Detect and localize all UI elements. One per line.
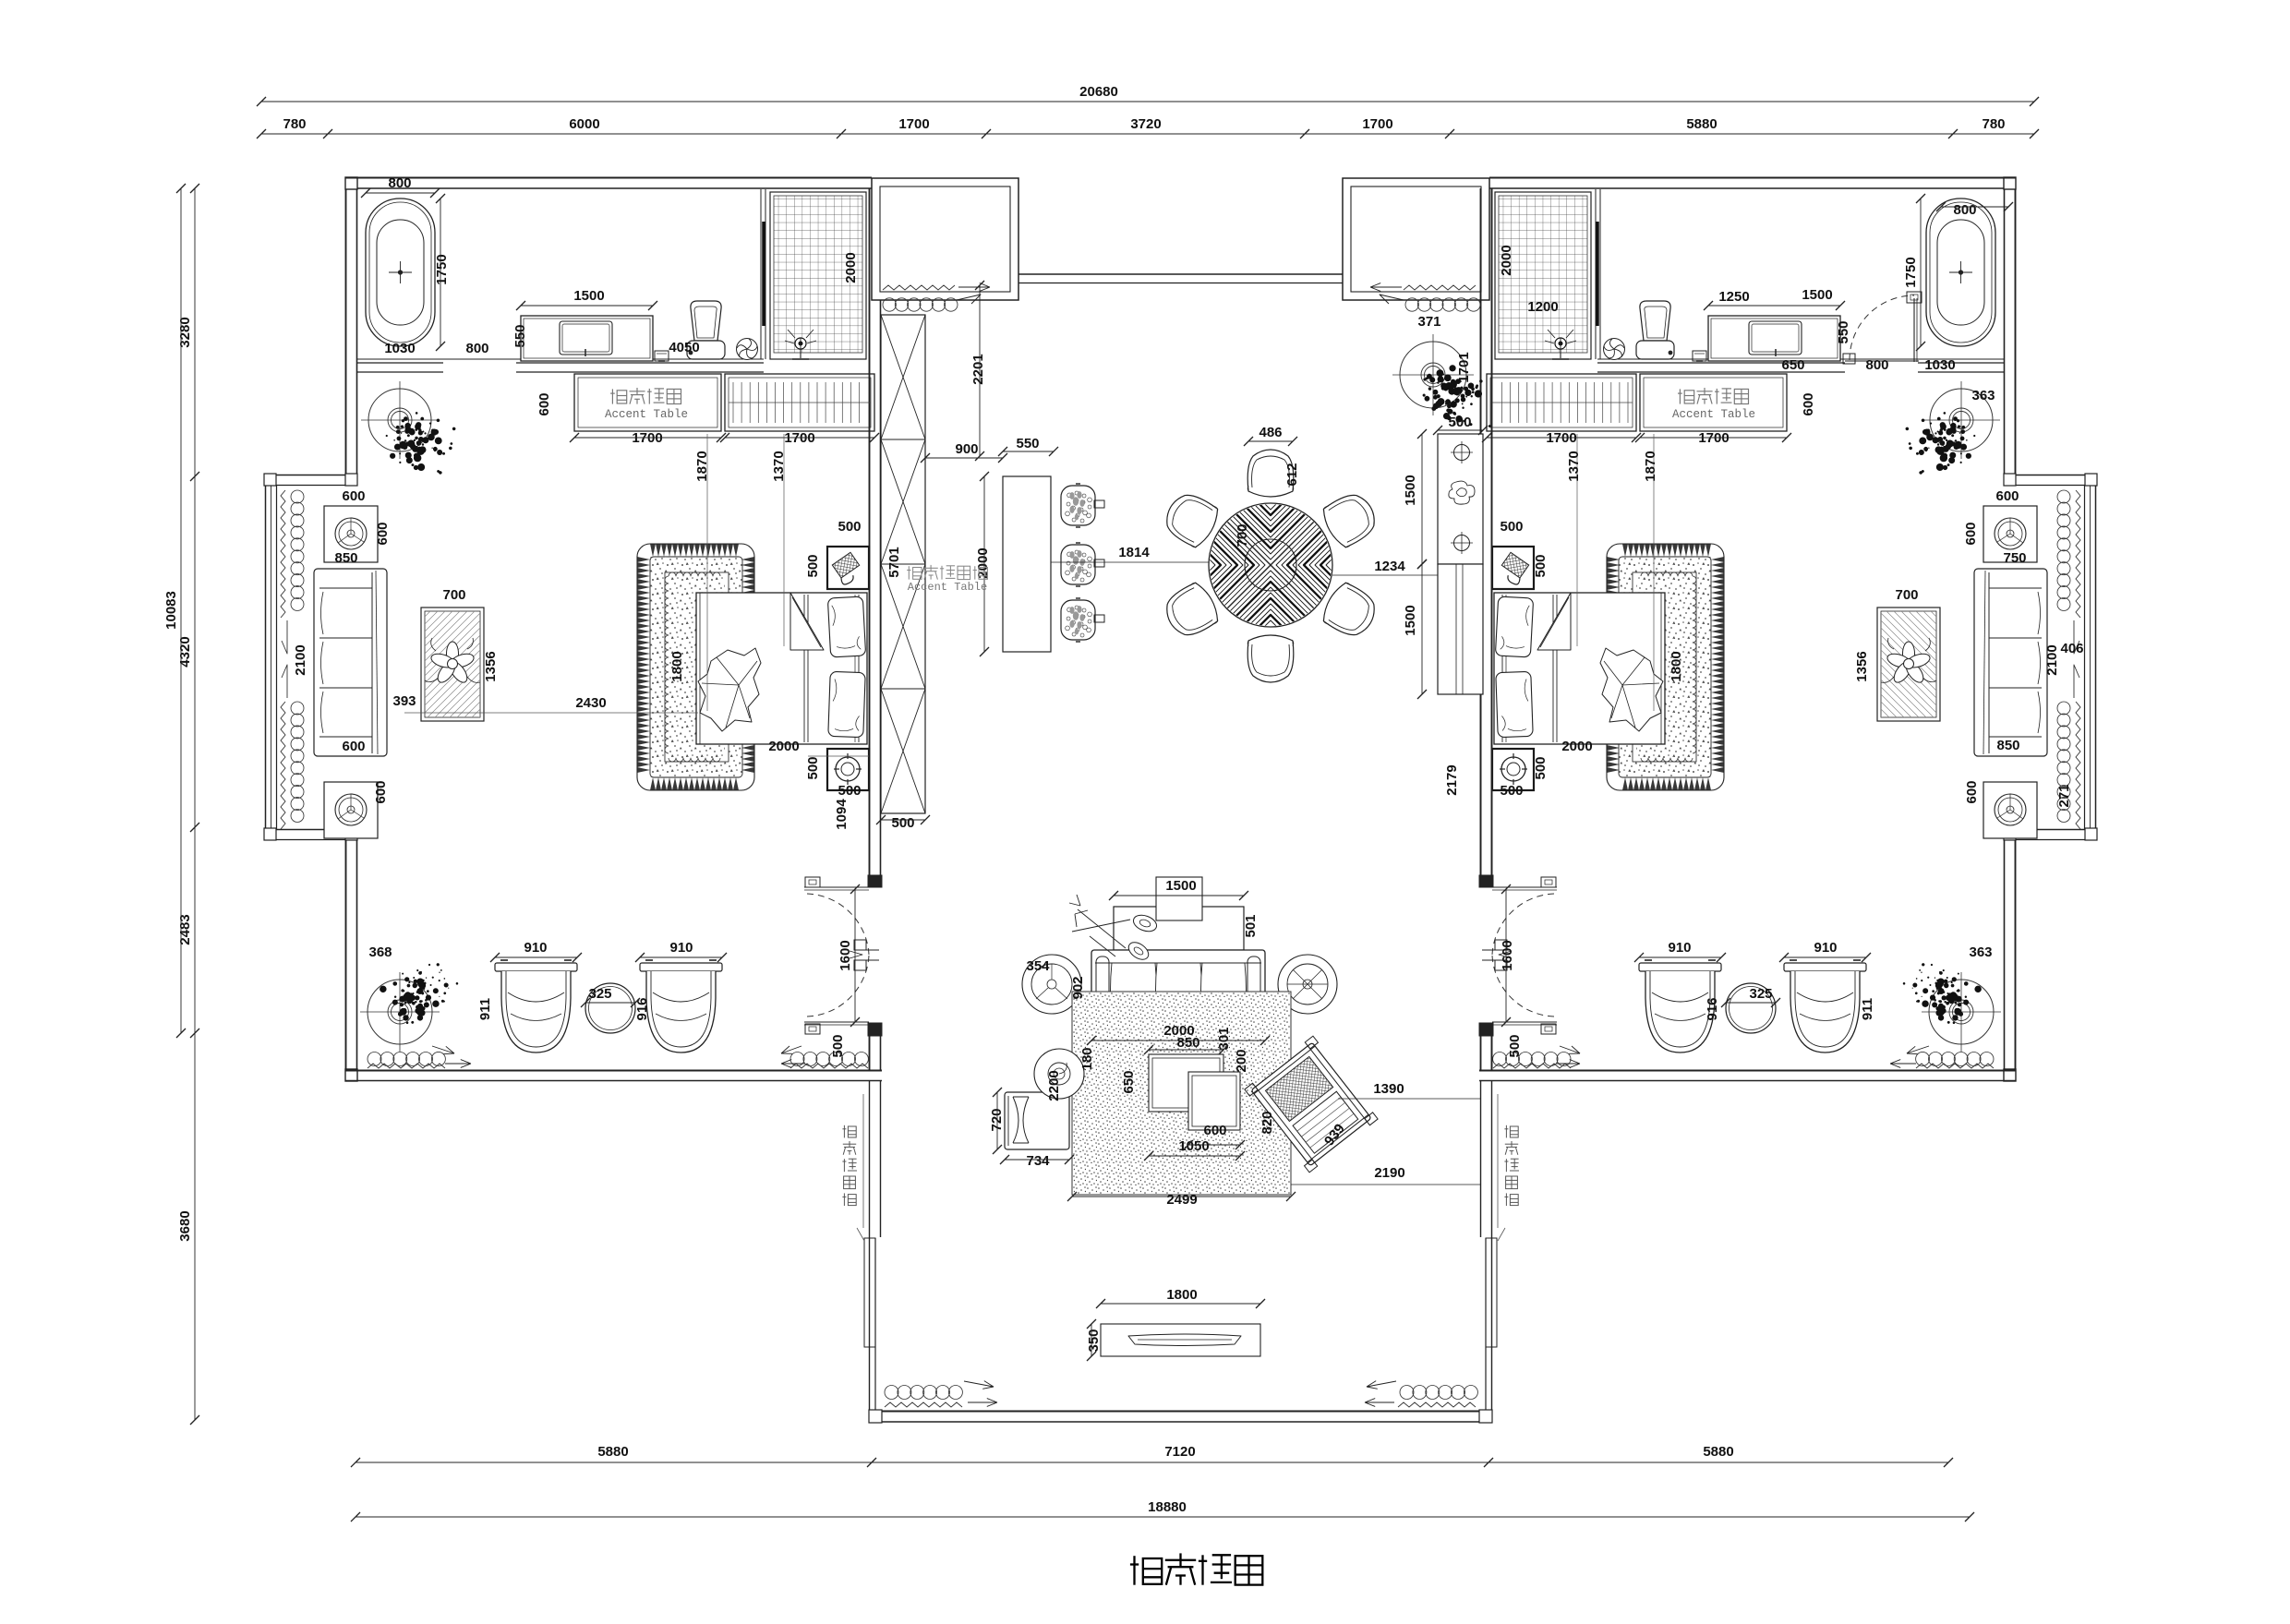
svg-text:1700: 1700 [784, 430, 814, 446]
svg-text:600: 600 [1964, 780, 1980, 803]
svg-text:1200: 1200 [1527, 299, 1558, 315]
svg-text:486: 486 [1259, 425, 1282, 440]
svg-text:900: 900 [955, 441, 978, 457]
svg-text:1750: 1750 [1903, 257, 1919, 287]
svg-text:1050: 1050 [1178, 1138, 1209, 1154]
svg-text:1500: 1500 [1403, 475, 1418, 505]
svg-text:20680: 20680 [1079, 84, 1118, 100]
svg-text:500: 500 [838, 519, 861, 535]
svg-text:600: 600 [1801, 392, 1816, 415]
svg-text:850: 850 [1996, 738, 2019, 753]
svg-text:910: 910 [1668, 940, 1691, 956]
svg-text:600: 600 [1963, 522, 1979, 545]
svg-text:6000: 6000 [569, 116, 599, 132]
svg-text:180: 180 [1079, 1047, 1095, 1070]
svg-text:600: 600 [342, 739, 365, 754]
svg-text:550: 550 [512, 324, 528, 347]
svg-text:3720: 3720 [1130, 116, 1161, 132]
svg-text:1356: 1356 [1854, 651, 1870, 681]
svg-text:500: 500 [1533, 554, 1549, 577]
svg-text:1700: 1700 [898, 116, 929, 132]
svg-text:750: 750 [2003, 550, 2026, 566]
svg-text:1870: 1870 [694, 451, 710, 481]
svg-text:18880: 18880 [1148, 1499, 1187, 1515]
svg-text:600: 600 [373, 780, 389, 803]
svg-text:600: 600 [342, 488, 365, 504]
svg-text:363: 363 [1969, 944, 1992, 960]
svg-text:1370: 1370 [771, 451, 787, 481]
svg-text:371: 371 [1417, 314, 1440, 330]
svg-text:1500: 1500 [573, 288, 604, 304]
svg-text:600: 600 [1995, 488, 2019, 504]
svg-text:2000: 2000 [768, 739, 799, 754]
svg-text:4050: 4050 [669, 340, 699, 355]
svg-text:1701: 1701 [1456, 352, 1472, 382]
svg-text:1800: 1800 [1166, 1287, 1197, 1303]
svg-text:406: 406 [2060, 641, 2083, 656]
svg-text:5880: 5880 [1703, 1444, 1733, 1460]
svg-text:500: 500 [838, 783, 861, 799]
svg-text:1700: 1700 [1362, 116, 1392, 132]
svg-text:301: 301 [1216, 1027, 1232, 1050]
svg-text:612: 612 [1284, 463, 1300, 486]
svg-text:1030: 1030 [1924, 357, 1955, 373]
svg-text:600: 600 [1203, 1123, 1226, 1138]
svg-text:5880: 5880 [597, 1444, 628, 1460]
svg-text:500: 500 [805, 756, 821, 779]
svg-text:650: 650 [1121, 1070, 1137, 1093]
svg-text:2200: 2200 [1046, 1070, 1062, 1101]
svg-text:500: 500 [891, 815, 914, 831]
svg-text:1234: 1234 [1374, 559, 1405, 574]
svg-text:1356: 1356 [483, 651, 499, 681]
svg-text:902: 902 [1070, 976, 1086, 999]
svg-text:500: 500 [1448, 415, 1471, 430]
svg-text:550: 550 [1016, 436, 1039, 451]
svg-text:1750: 1750 [434, 254, 450, 284]
svg-text:2483: 2483 [177, 914, 193, 944]
svg-text:911: 911 [1860, 998, 1875, 1020]
svg-text:800: 800 [465, 341, 488, 356]
svg-text:2179: 2179 [1444, 764, 1460, 795]
svg-text:7120: 7120 [1164, 1444, 1195, 1460]
svg-text:3680: 3680 [177, 1210, 193, 1241]
svg-text:800: 800 [1953, 202, 1976, 218]
svg-text:2190: 2190 [1374, 1165, 1404, 1181]
svg-text:Accent Table: Accent Table [605, 408, 688, 421]
svg-text:1030: 1030 [384, 341, 415, 356]
svg-text:800: 800 [388, 175, 411, 191]
svg-text:1700: 1700 [1698, 430, 1729, 446]
svg-text:1800: 1800 [669, 651, 685, 681]
svg-text:2430: 2430 [575, 695, 606, 711]
svg-text:5701: 5701 [886, 547, 902, 577]
svg-text:800: 800 [1865, 357, 1888, 373]
svg-text:500: 500 [1507, 1034, 1523, 1057]
svg-text:2201: 2201 [970, 354, 986, 384]
svg-text:501: 501 [1243, 914, 1259, 937]
svg-text:363: 363 [1971, 388, 1995, 403]
svg-text:1390: 1390 [1373, 1081, 1404, 1097]
svg-text:700: 700 [1235, 523, 1250, 547]
svg-text:3280: 3280 [177, 317, 193, 347]
svg-text:1600: 1600 [838, 940, 853, 970]
svg-text:1500: 1500 [1403, 605, 1418, 635]
svg-text:734: 734 [1026, 1153, 1050, 1169]
svg-text:1500: 1500 [1165, 878, 1196, 894]
svg-text:2100: 2100 [2044, 644, 2060, 675]
svg-text:700: 700 [442, 587, 465, 603]
svg-text:Accent Table: Accent Table [1672, 408, 1755, 421]
svg-text:5880: 5880 [1686, 116, 1717, 132]
svg-text:1800: 1800 [1669, 651, 1684, 681]
svg-text:500: 500 [1500, 783, 1523, 799]
svg-text:10083: 10083 [163, 591, 179, 630]
svg-text:500: 500 [1500, 519, 1523, 535]
svg-text:2499: 2499 [1166, 1192, 1197, 1208]
svg-text:720: 720 [989, 1108, 1005, 1131]
svg-text:780: 780 [283, 116, 306, 132]
svg-text:700: 700 [1895, 587, 1918, 603]
svg-text:500: 500 [805, 554, 821, 577]
svg-text:2000: 2000 [975, 547, 991, 578]
svg-text:1250: 1250 [1718, 289, 1749, 305]
svg-text:2000: 2000 [1561, 739, 1592, 754]
svg-text:600: 600 [536, 392, 552, 415]
svg-text:911: 911 [477, 998, 493, 1020]
svg-text:1370: 1370 [1566, 451, 1582, 481]
svg-text:780: 780 [1982, 116, 2005, 132]
svg-text:2000: 2000 [843, 252, 859, 283]
svg-text:4320: 4320 [177, 636, 193, 667]
svg-text:1700: 1700 [632, 430, 662, 446]
svg-text:910: 910 [1814, 940, 1837, 956]
svg-text:850: 850 [1176, 1035, 1199, 1051]
svg-text:350: 350 [1086, 1329, 1102, 1352]
svg-text:200: 200 [1234, 1049, 1249, 1072]
svg-text:325: 325 [1749, 986, 1772, 1002]
svg-text:271: 271 [2056, 784, 2072, 807]
svg-text:820: 820 [1259, 1111, 1275, 1134]
svg-text:500: 500 [1533, 756, 1549, 779]
svg-text:1700: 1700 [1546, 430, 1576, 446]
svg-text:1870: 1870 [1643, 451, 1658, 481]
svg-text:1814: 1814 [1118, 545, 1150, 560]
svg-text:550: 550 [1836, 320, 1851, 343]
svg-text:2000: 2000 [1499, 245, 1514, 275]
svg-text:916: 916 [1705, 997, 1720, 1020]
svg-text:Accent Table: Accent Table [908, 581, 987, 594]
svg-text:650: 650 [1781, 357, 1804, 373]
svg-text:368: 368 [368, 944, 392, 960]
svg-text:500: 500 [830, 1034, 846, 1057]
svg-text:1094: 1094 [834, 799, 850, 830]
svg-text:393: 393 [392, 693, 416, 709]
svg-text:850: 850 [334, 550, 357, 566]
svg-text:1500: 1500 [1802, 287, 1832, 303]
svg-text:2100: 2100 [293, 644, 308, 675]
svg-text:600: 600 [375, 522, 391, 545]
svg-text:910: 910 [524, 940, 547, 956]
svg-text:354: 354 [1026, 958, 1050, 974]
svg-text:1600: 1600 [1500, 940, 1515, 970]
svg-text:910: 910 [669, 940, 693, 956]
svg-text:325: 325 [588, 986, 611, 1002]
